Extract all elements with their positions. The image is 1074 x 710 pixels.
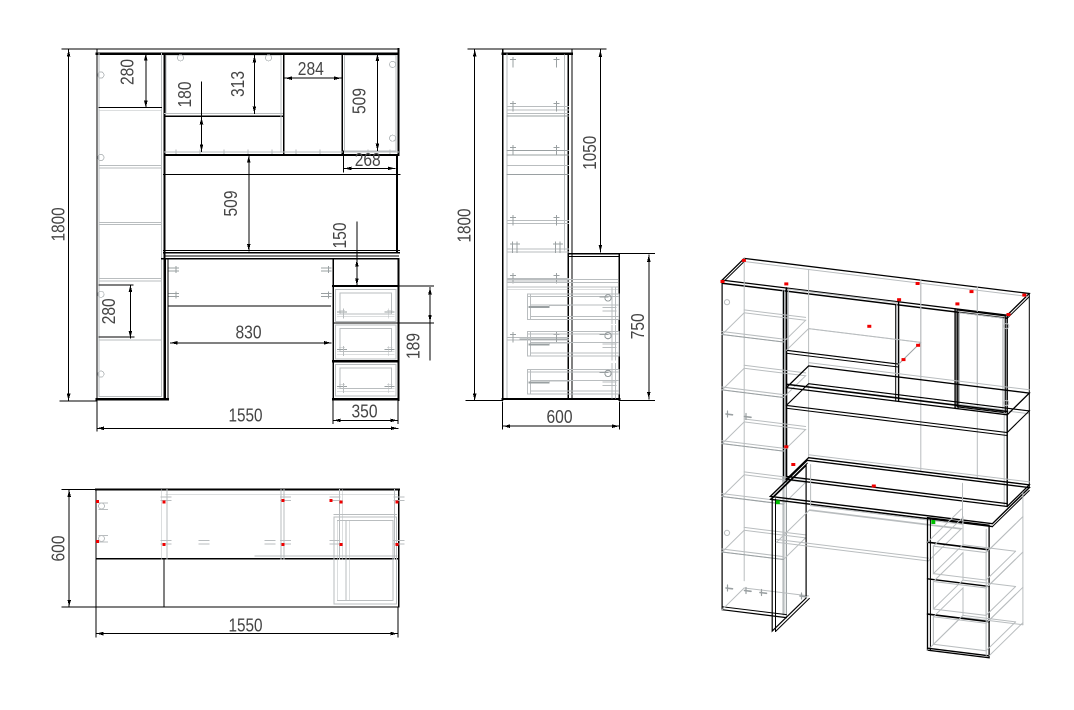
svg-text:1800: 1800 xyxy=(47,207,68,241)
svg-text:150: 150 xyxy=(329,223,350,249)
svg-text:509: 509 xyxy=(349,88,370,114)
svg-text:350: 350 xyxy=(352,400,378,421)
svg-text:189: 189 xyxy=(402,333,423,359)
svg-text:1550: 1550 xyxy=(229,614,263,635)
svg-text:280: 280 xyxy=(98,298,119,324)
svg-text:284: 284 xyxy=(298,58,324,79)
svg-text:280: 280 xyxy=(117,59,138,85)
svg-text:600: 600 xyxy=(47,536,68,562)
svg-text:509: 509 xyxy=(220,191,241,217)
svg-text:180: 180 xyxy=(174,82,195,108)
svg-text:830: 830 xyxy=(236,321,262,342)
svg-text:268: 268 xyxy=(355,149,381,170)
svg-text:313: 313 xyxy=(227,71,248,97)
svg-text:1050: 1050 xyxy=(579,136,600,170)
svg-text:750: 750 xyxy=(627,313,648,339)
svg-text:600: 600 xyxy=(547,406,573,427)
svg-text:1550: 1550 xyxy=(229,405,263,426)
svg-text:1800: 1800 xyxy=(454,209,475,243)
